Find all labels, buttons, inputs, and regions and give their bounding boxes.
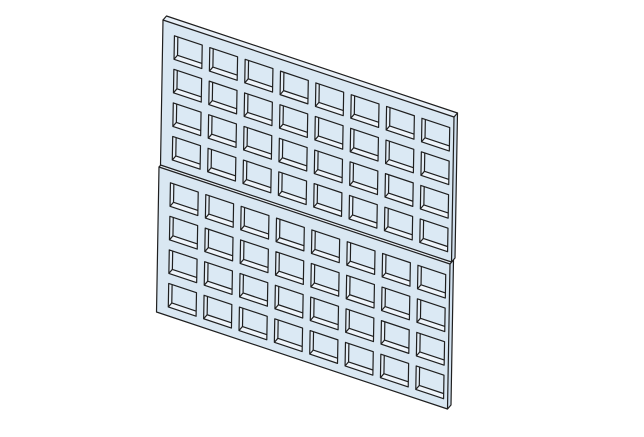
model-canvas	[0, 0, 644, 437]
cad-viewport	[0, 0, 644, 437]
